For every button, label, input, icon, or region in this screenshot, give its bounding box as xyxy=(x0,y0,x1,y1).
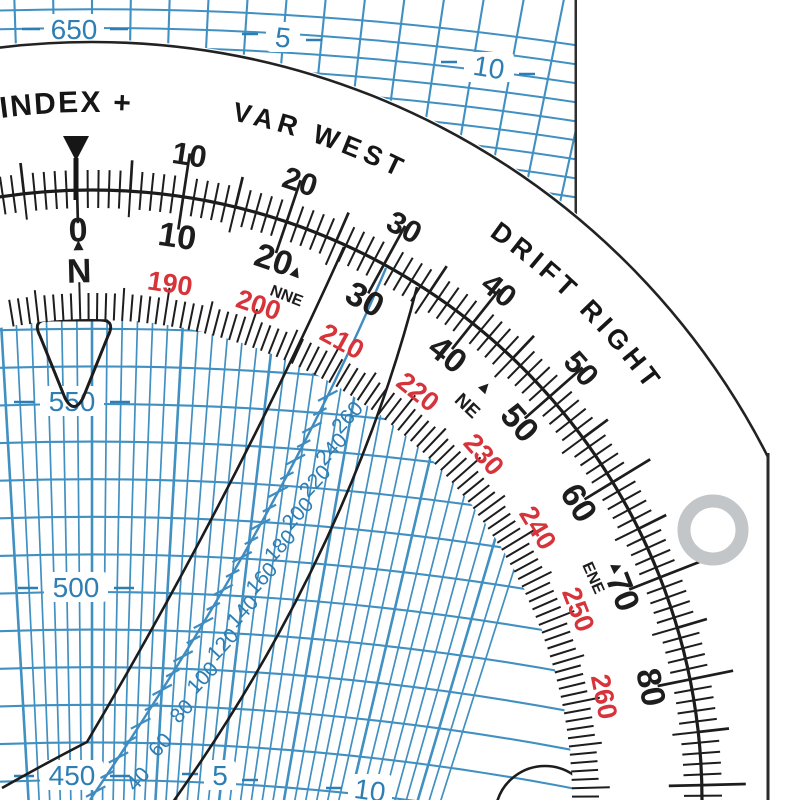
compass-tick xyxy=(669,785,702,786)
compass-fine-tick xyxy=(105,293,106,320)
compass-degree-label: 10 xyxy=(156,215,199,258)
compass-tick xyxy=(683,764,701,765)
fixed-scale-tick xyxy=(701,763,721,764)
compass-tick xyxy=(67,191,68,209)
speed-arc-label-450: 450 xyxy=(49,760,96,791)
drift-line-label-10-bottom: 10 xyxy=(352,773,387,800)
speed-arc-label-550: 550 xyxy=(49,386,96,417)
fixed-degree-label: 10 xyxy=(170,135,209,175)
index-plus: + xyxy=(113,86,134,120)
compass-tick xyxy=(109,190,110,208)
compass-fine-tick xyxy=(572,779,599,780)
fixed-scale-tick xyxy=(55,171,56,191)
drift-line-label-5-bottom: 5 xyxy=(212,760,228,791)
fixed-scale-tick xyxy=(702,784,746,785)
drift-line-label-10-top: 10 xyxy=(471,50,507,85)
fixed-scale-tick xyxy=(120,171,121,191)
compass-fine-tick xyxy=(71,293,72,320)
compass-fine-tick xyxy=(572,787,610,788)
compass-degree-label: 80 xyxy=(628,665,673,710)
fixed-scale-tick xyxy=(702,774,722,775)
compass-tick xyxy=(140,192,141,210)
fixed-scale-tick xyxy=(109,170,110,190)
flight-computer-screenshot: 650 5 10 550 500 xyxy=(0,0,800,800)
drift-line-label-5-top: 5 xyxy=(274,21,293,53)
compass-tick xyxy=(119,191,120,209)
e6b-wind-face: 650 5 10 550 500 xyxy=(0,0,800,800)
compass-tick xyxy=(682,753,700,754)
fixed-scale-tick xyxy=(130,160,132,191)
cardinal-letter-n: N xyxy=(66,252,91,291)
compass-fine-tick xyxy=(114,294,115,321)
fixed-scale-tick xyxy=(66,171,67,191)
compass-tick xyxy=(684,775,702,776)
compass-tick xyxy=(56,191,57,209)
compass-tick xyxy=(45,192,46,210)
speed-arc-label-500: 500 xyxy=(53,572,100,603)
